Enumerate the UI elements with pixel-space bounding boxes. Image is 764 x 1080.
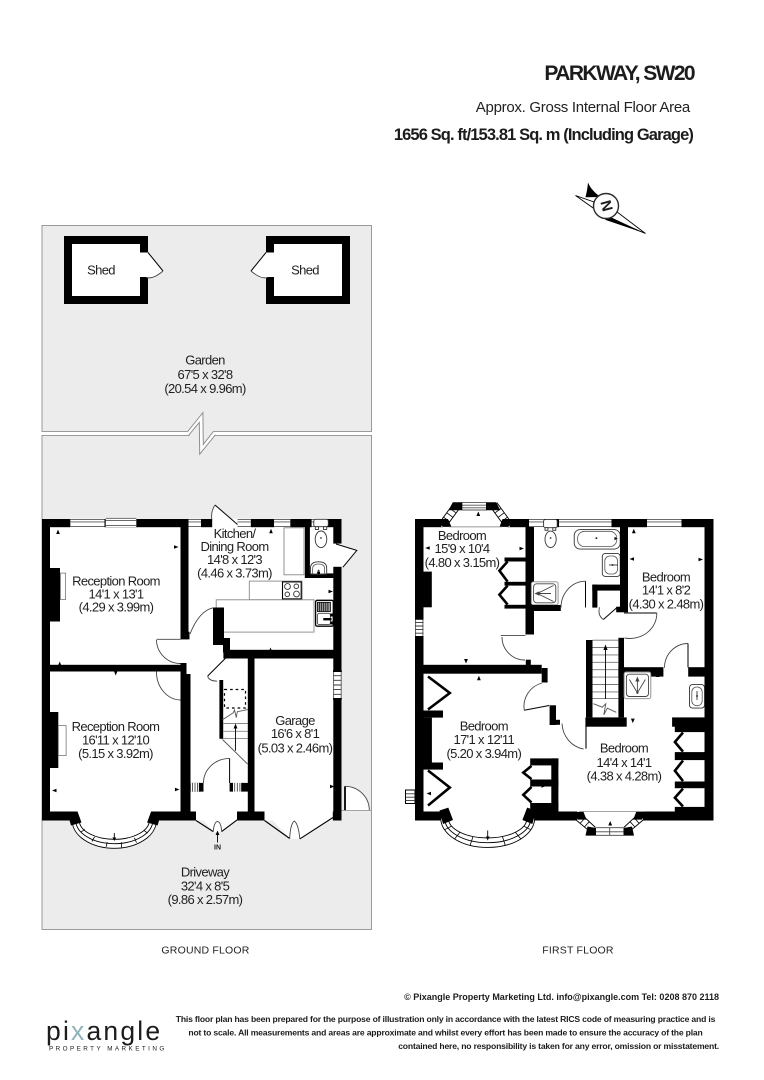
- svg-text:(4.46 x 3.73m): (4.46 x 3.73m): [197, 566, 272, 581]
- svg-text:(5.03 x 2.46m): (5.03 x 2.46m): [258, 741, 333, 756]
- svg-text:(20.54 x 9.96m): (20.54 x 9.96m): [164, 381, 246, 396]
- svg-text:(4.30 x 2.48m): (4.30 x 2.48m): [629, 597, 704, 612]
- svg-text:PARKWAY, SW20: PARKWAY, SW20: [544, 62, 694, 85]
- svg-text:17'1 x 12'11: 17'1 x 12'11: [454, 732, 515, 747]
- svg-text:Approx. Gross Internal Floor A: Approx. Gross Internal Floor Area: [476, 99, 691, 116]
- svg-text:not to scale. All measurements: not to scale. All measurements and areas…: [188, 1028, 702, 1038]
- svg-text:67'5 x 32'8: 67'5 x 32'8: [178, 367, 233, 382]
- svg-text:(4.38 x 4.28m): (4.38 x 4.28m): [587, 769, 662, 784]
- svg-text:(5.15 x 3.92m): (5.15 x 3.92m): [78, 746, 153, 761]
- svg-text:This floor plan has been prepa: This floor plan has been prepared for th…: [176, 1014, 716, 1024]
- svg-text:(5.20 x 3.94m): (5.20 x 3.94m): [446, 746, 521, 761]
- svg-text:Shed: Shed: [291, 263, 319, 278]
- svg-text:Garden: Garden: [185, 353, 225, 368]
- svg-text:(9.86 x 2.57m): (9.86 x 2.57m): [168, 892, 243, 907]
- svg-text:GROUND FLOOR: GROUND FLOOR: [161, 945, 249, 957]
- svg-text:14'1 x 8'2: 14'1 x 8'2: [642, 583, 691, 598]
- svg-text:© Pixangle Property Marketing: © Pixangle Property Marketing Ltd. info@…: [404, 992, 719, 1002]
- svg-text:(4.80 x 3.15m): (4.80 x 3.15m): [425, 555, 500, 570]
- svg-text:(4.29 x 3.99m): (4.29 x 3.99m): [79, 600, 154, 615]
- svg-text:Driveway: Driveway: [181, 865, 230, 880]
- svg-text:15'9 x 10'4: 15'9 x 10'4: [435, 541, 490, 556]
- svg-text:pixangle: pixangle: [46, 1016, 162, 1046]
- svg-text:16'6 x 8'1: 16'6 x 8'1: [271, 726, 320, 741]
- svg-text:FIRST FLOOR: FIRST FLOOR: [542, 945, 614, 957]
- svg-text:Shed: Shed: [87, 263, 115, 278]
- svg-text:Bedroom: Bedroom: [600, 741, 648, 756]
- svg-text:contained here, no responsibil: contained here, no responsibility is tak…: [398, 1041, 719, 1051]
- svg-text:1656 Sq. ft/153.81 Sq. m (Incl: 1656 Sq. ft/153.81 Sq. m (Including Gara…: [394, 126, 694, 144]
- svg-text:IN: IN: [214, 845, 221, 852]
- svg-text:PROPERTY MARKETING: PROPERTY MARKETING: [49, 1046, 167, 1053]
